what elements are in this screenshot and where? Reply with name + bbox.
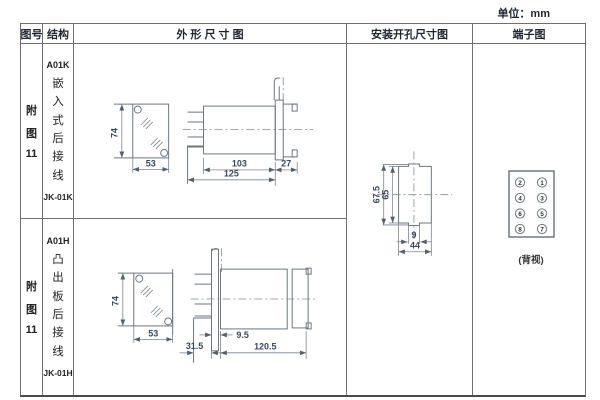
pin-number: 6 — [518, 211, 522, 218]
header-cell-terminal: 端子图 — [473, 24, 585, 44]
dim-pin-length-label: 31.5 — [186, 341, 203, 351]
terminal-cell: 2 1 4 3 6 5 8 7 (背视) — [473, 44, 585, 395]
dim-slot-width-label: 9 — [411, 230, 416, 240]
pin-number: 4 — [518, 196, 522, 203]
fig-char: 11 — [26, 148, 38, 160]
dim-cutout-height-label: 65 — [381, 190, 391, 200]
dim-cutout-width-label: 44 — [410, 240, 420, 250]
mounting-cell: 67.5 65 9 44 — [347, 44, 473, 395]
structure-cell-row2: A01H 凸出板后接线 JK-01H — [43, 219, 74, 395]
dim-front-height-label: 74 — [109, 127, 119, 137]
screw-hole-icon — [134, 106, 141, 113]
mount-type-vertical: 嵌入式后接线 — [52, 75, 65, 185]
mounting-cutout-drawing: 67.5 65 9 44 — [347, 44, 472, 395]
dim-front-width-label: 53 — [146, 158, 156, 168]
hatch-mark-icon — [141, 286, 153, 297]
fig-char: 图 — [26, 125, 37, 141]
outline-cell-row2: 74 53 — [74, 219, 347, 395]
outline-drawing-jk01k: 74 53 — [74, 44, 346, 219]
dim-front-width-label: 53 — [148, 328, 158, 338]
spec-table: 图号 结构 外 形 尺 寸 图 安装开孔尺寸图 端子图 附 图 11 A01K … — [20, 23, 586, 397]
outline-drawing-jk01h: 74 53 — [74, 219, 346, 395]
fig-char: 附 — [26, 102, 37, 118]
terminal-diagram: 2 1 4 3 6 5 8 7 (背视) — [473, 44, 585, 395]
unit-label: 单位：mm — [497, 5, 550, 21]
pin-number: 8 — [518, 227, 522, 234]
hatch-mark-icon — [141, 118, 153, 129]
structure-cell-row1: A01K 嵌入式后接线 JK-01K — [43, 44, 74, 219]
mounting-board — [211, 249, 218, 351]
fig-char: 附 — [26, 278, 37, 294]
dim-body-length-label: 120.5 — [254, 341, 276, 351]
pin-number: 3 — [540, 196, 544, 203]
pin-number: 7 — [540, 227, 544, 234]
screw-hole-icon — [136, 275, 143, 282]
dim-total-length-label: 125 — [224, 168, 239, 178]
rear-view-label: (背视) — [518, 254, 543, 266]
dim-front-height-label: 74 — [110, 296, 120, 306]
pin-number: 5 — [540, 211, 544, 218]
panel-hook-icon — [292, 104, 297, 111]
dim-flange-depth-label: 27 — [281, 158, 291, 168]
mount-type-vertical: 凸出板后接线 — [52, 251, 65, 361]
fig-no-cell-row1: 附 图 11 — [21, 44, 43, 219]
fig-char: 11 — [26, 324, 38, 336]
fig-char: 图 — [26, 301, 37, 317]
model-code: JK-01K — [43, 192, 72, 202]
pin-number: 2 — [518, 180, 522, 187]
dim-body-length-label: 103 — [232, 158, 247, 168]
fig-no-cell-row2: 附 图 11 — [21, 219, 43, 395]
terminal-pins: 2 1 4 3 6 5 8 7 — [515, 178, 546, 234]
pin-number: 1 — [540, 180, 544, 187]
front-view: 74 53 — [109, 104, 168, 173]
header-cell-mounting: 安装开孔尺寸图 — [347, 24, 473, 44]
front-view: 74 53 — [110, 269, 172, 343]
model-code: JK-01H — [43, 368, 72, 378]
panel-hook-icon — [292, 149, 297, 156]
header-cell-structure: 结构 — [43, 24, 74, 44]
screw-hole-icon — [165, 318, 172, 325]
side-view: 103 27 125 — [183, 77, 314, 186]
side-view: 9.5 31.5 120.5 — [180, 248, 316, 363]
header-cell-outline: 外 形 尺 寸 图 — [74, 24, 347, 44]
outline-cell-row1: 74 53 — [74, 44, 347, 219]
hatch-mark-icon — [151, 306, 163, 317]
screw-hole-icon — [161, 149, 168, 156]
model-label: A01H — [46, 236, 69, 246]
model-label: A01K — [46, 60, 69, 70]
hatch-mark-icon — [151, 137, 163, 148]
dim-board-offset-label: 9.5 — [236, 330, 248, 340]
header-cell-fig-no: 图号 — [21, 24, 43, 44]
